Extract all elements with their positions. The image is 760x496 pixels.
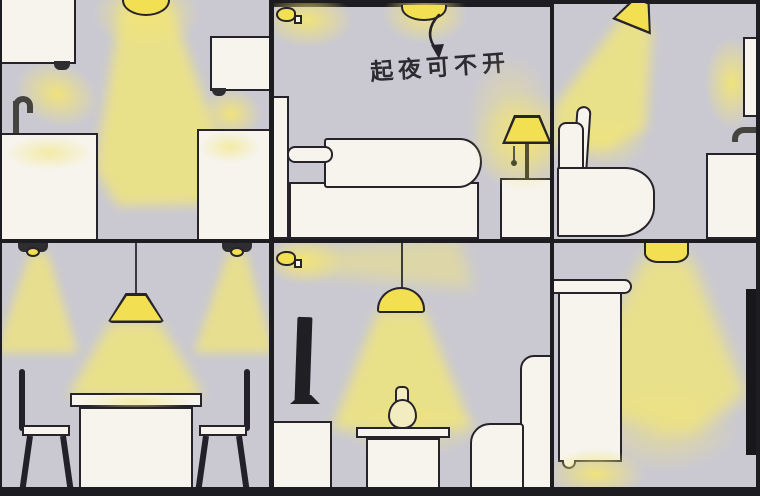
wall-night-light [276,7,296,22]
panel-hallway [554,243,760,496]
spotlight-beam-right [190,251,269,363]
wall-night-light-beam [278,243,478,301]
pillow [287,146,333,163]
counter-right [197,129,269,239]
pendant-lamp-shade [107,293,165,323]
left-border [0,0,2,496]
bedside-lamp-chain [513,146,515,161]
spotlight-beam-left [0,251,80,363]
upper-cabinet-right [210,36,269,91]
under-cabinet-light-left [54,61,70,70]
chair-right-seat [199,425,247,436]
upper-cabinet-left [0,0,76,64]
dining-table-top [70,393,202,407]
chair-right-back [244,369,250,431]
spotlight-bulb-right [230,247,244,257]
chair-right-rear-leg [236,436,249,490]
chair-left-rear-leg [20,436,33,490]
comic-grid: 起夜可不开 [0,0,760,496]
ceiling-dome-light [122,0,170,16]
pendant-dome-shade [377,287,425,313]
wall-night-light-bracket [294,259,302,268]
bedside-lamp-stem [525,144,529,179]
chair-left-seat [22,425,70,436]
panel-bathroom [554,0,760,239]
dining-table-base [79,407,193,493]
annotation-text: 起夜可不开 [369,43,511,87]
toilet-bowl [557,167,655,237]
pendant-cord [401,243,403,289]
floor-line [0,487,760,496]
panel-bedroom: 起夜可不开 [274,0,550,239]
armchair-back [520,355,550,496]
duvet [324,138,482,188]
bedside-lamp-shade [502,115,550,144]
top-border [269,0,760,3]
under-cabinet-light-right [212,88,226,96]
right-border [756,0,760,496]
panel-living-room [274,243,550,496]
faucet-spout [13,96,33,113]
panel-dining-room [0,243,269,496]
bedside-lamp-chain-ball [511,160,517,166]
wall-night-light [276,251,296,266]
chair-left-front-leg [60,436,73,490]
vase-body [388,399,417,429]
angled-pendant-light [612,0,662,35]
tv [295,317,313,401]
vanity [706,153,760,239]
nightstand [500,178,550,239]
pendant-cord [135,243,137,296]
spotlight-bulb-left [26,247,40,257]
cylinder-pendant-light [644,243,689,263]
chair-right-front-leg [196,436,209,490]
wardrobe-body [558,292,622,462]
chair-left-back [19,369,25,431]
wall-night-light-bracket [294,15,302,24]
armchair-arm [470,423,524,496]
wardrobe-knob [562,460,576,469]
panel-kitchen [0,0,269,239]
headboard [274,96,289,239]
bed-base [289,182,479,239]
tv-cabinet [274,421,332,489]
pendant-beam [60,321,212,401]
sink-counter-left [0,133,98,239]
side-table-base [366,438,440,489]
